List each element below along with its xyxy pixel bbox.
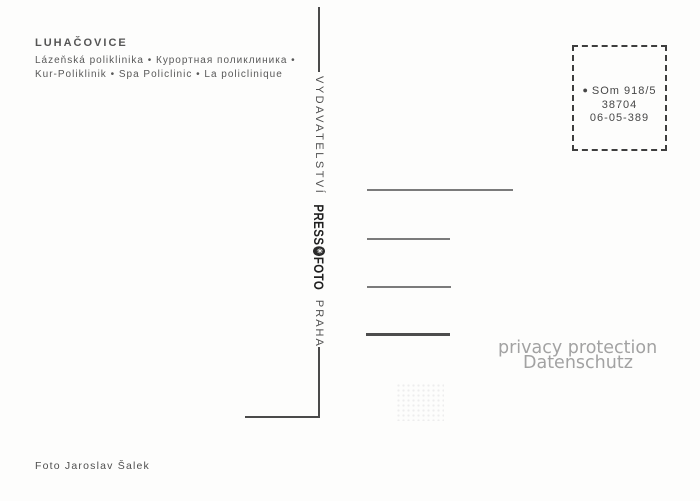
logo-foto-text: FOTO	[311, 257, 327, 290]
bullet-icon: ●	[582, 85, 588, 95]
divider-foot-line	[245, 416, 320, 418]
removed-barcode-ghost	[396, 383, 444, 421]
stamp-code-line: ●SOm 918/5	[574, 85, 665, 99]
publisher-city: PRAHA	[313, 300, 325, 348]
logo-press-text: PRESS	[311, 205, 327, 246]
postcard-title: LUHAČOVICE	[35, 37, 296, 49]
watermark-line-german: Datenschutz	[523, 356, 657, 371]
stamp-code: SOm 918/5	[592, 85, 657, 97]
stamp-date-code: 06-05-389	[574, 112, 665, 126]
divider-top-segment	[318, 7, 320, 72]
caption-line-german-english-french: Kur-Poliklinik • Spa Policlinic • La pol…	[35, 68, 296, 82]
stamp-box: ●SOm 918/5 38704 06-05-389	[572, 45, 667, 151]
photo-credit: Foto Jaroslav Šalek	[35, 460, 150, 472]
privacy-watermark: privacy protection Datenschutz	[498, 341, 657, 371]
address-line-1	[367, 189, 513, 191]
address-line-2	[367, 238, 450, 240]
address-line-4	[366, 333, 450, 336]
postcard-back: LUHAČOVICE Lázeňská poliklinika • Курорт…	[0, 0, 700, 501]
stamp-number: 38704	[574, 99, 665, 113]
ctk-emblem-icon: ✳	[313, 247, 325, 257]
address-line-3	[367, 286, 451, 288]
caption-line-czech-russian: Lázeňská poliklinika • Курортная поликли…	[35, 54, 296, 68]
pressfoto-logo: PRESS✳FOTO	[311, 205, 327, 291]
publisher-name: VYDAVATELSTVÍ	[313, 76, 325, 195]
caption-block: LUHAČOVICE Lázeňská poliklinika • Курорт…	[35, 37, 296, 82]
publisher-spine: VYDAVATELSTVÍ PRESS✳FOTO PRAHA	[308, 76, 330, 346]
divider-bottom-segment	[318, 347, 320, 417]
